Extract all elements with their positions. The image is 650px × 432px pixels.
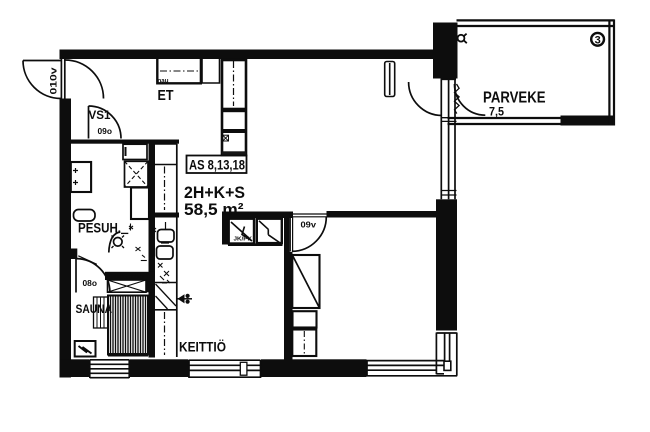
svg-text:08o: 08o	[83, 278, 98, 288]
svg-text:AS 8,13,18: AS 8,13,18	[189, 157, 245, 173]
svg-text:58,5 m²: 58,5 m²	[184, 201, 244, 219]
svg-text:ET: ET	[158, 87, 174, 104]
svg-text:7,5: 7,5	[489, 107, 505, 119]
svg-text:VS1: VS1	[89, 110, 112, 122]
svg-text:PARVEKE: PARVEKE	[483, 90, 546, 107]
svg-text:nau: nau	[158, 79, 169, 85]
svg-text:09o: 09o	[98, 126, 113, 136]
svg-text:JK/PK: JK/PK	[234, 237, 253, 243]
svg-text:09v: 09v	[301, 219, 317, 229]
svg-text:2H+K+S: 2H+K+S	[184, 184, 245, 202]
svg-text:3: 3	[595, 35, 601, 47]
svg-text:PESUH.: PESUH.	[78, 220, 121, 235]
svg-text:010v: 010v	[49, 68, 59, 95]
svg-text:KEITTIÖ: KEITTIÖ	[179, 340, 226, 355]
